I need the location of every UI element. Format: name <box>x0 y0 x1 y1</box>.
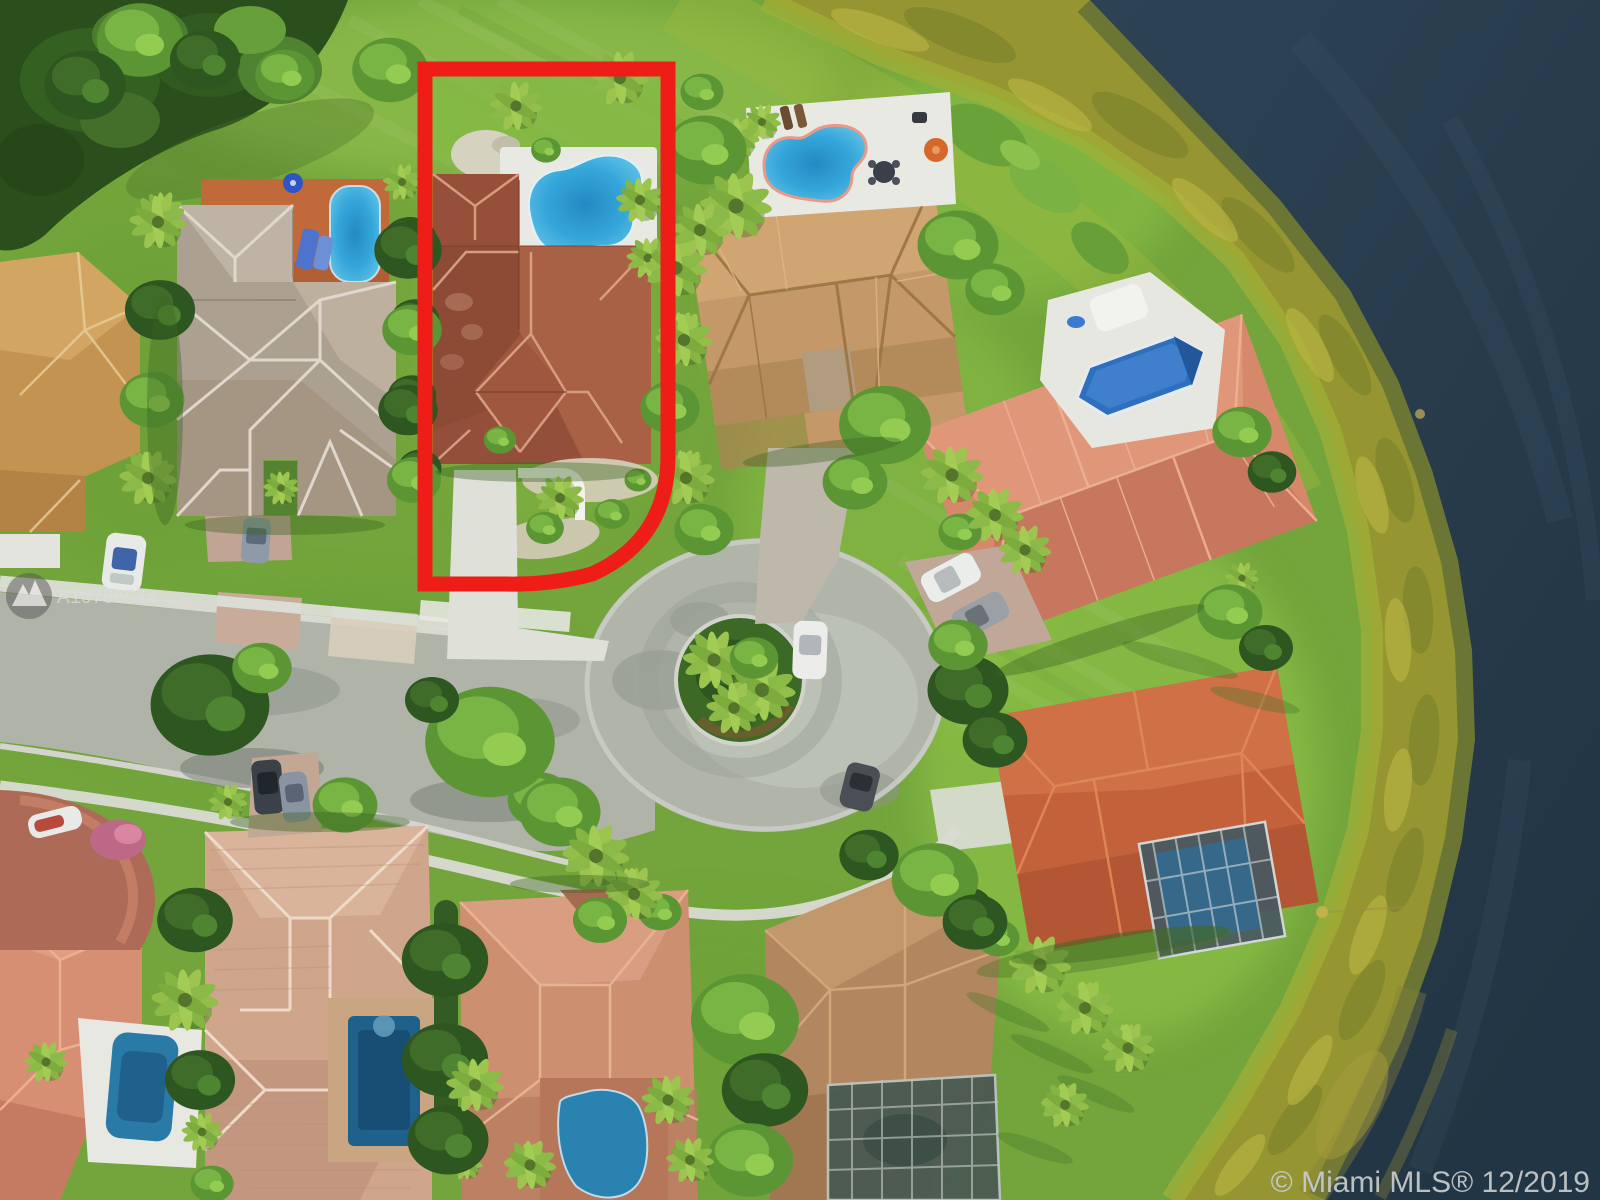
svg-text:A10786544: A10786544 <box>57 587 158 608</box>
svg-text:© Miami MLS® 12/2019: © Miami MLS® 12/2019 <box>1271 1166 1590 1199</box>
